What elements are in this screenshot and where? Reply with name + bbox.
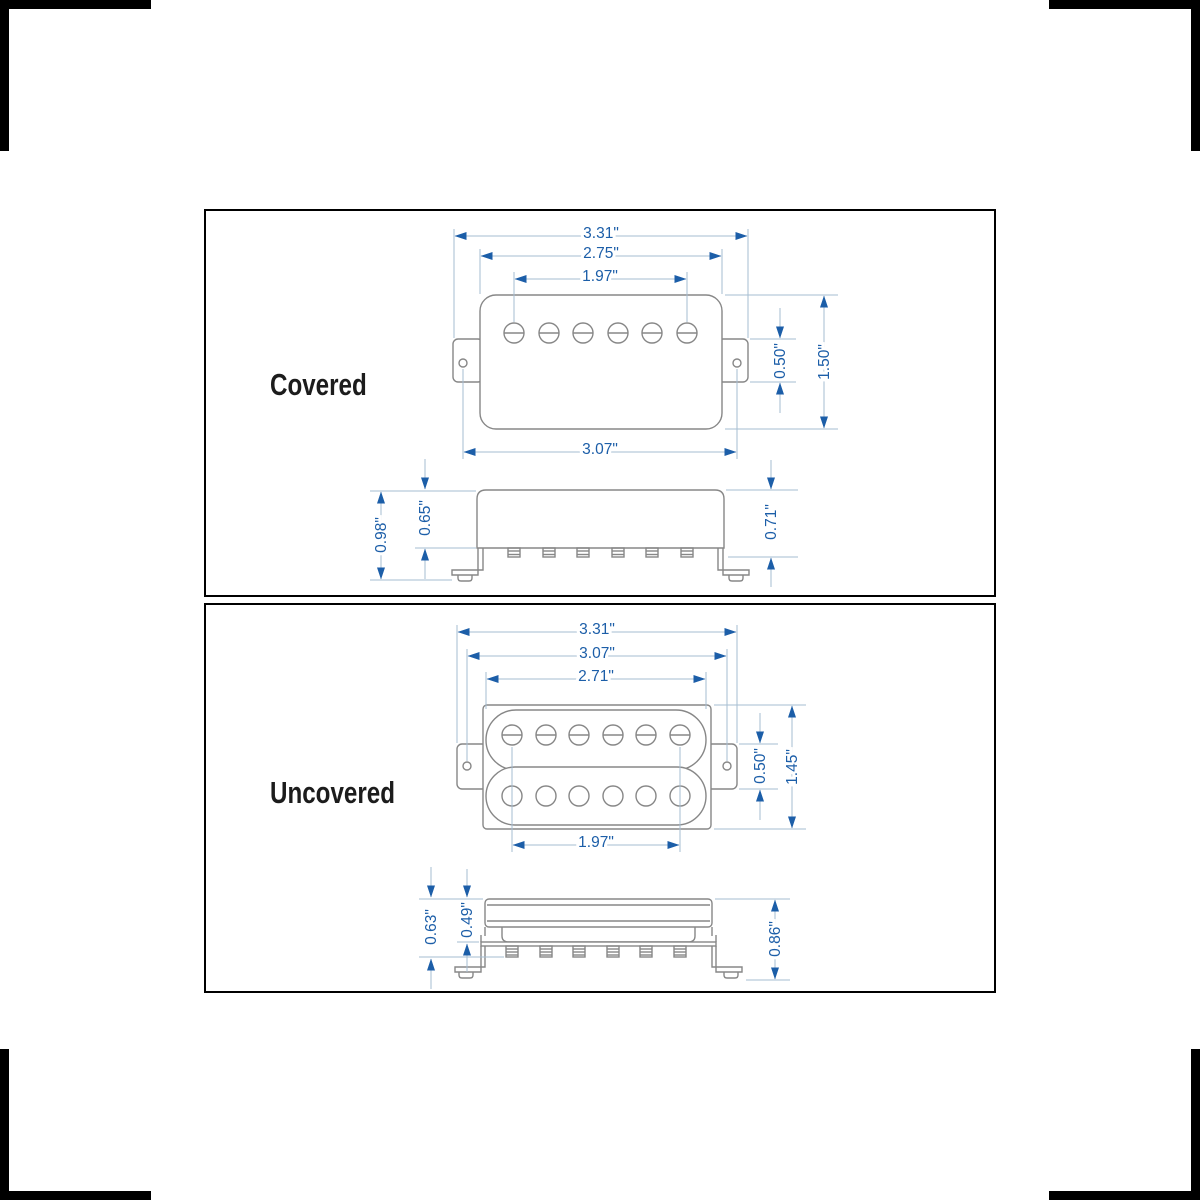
dim-mounting-width-label: 3.07" [582,441,618,458]
covered-top-view [453,295,748,429]
covered-panel: Covered [204,209,996,597]
uncovered-side-view [455,899,742,978]
dim-ear-height-label: 0.50" [772,343,789,379]
frame-corner-bottom-left [0,1049,151,1200]
frame-corner-bottom-right [1049,1049,1200,1200]
cover-side-profile [477,490,724,548]
dim-bobbin-depth-label: 0.49" [459,902,476,938]
pole-screw-tips [508,548,693,557]
uncovered-drawing: 3.31" 3.07" 2.71" 1.97" [206,605,994,991]
covered-side-view [452,490,749,581]
mounting-hole-left [463,762,471,770]
dim-total-depth-label: 0.98" [373,517,390,553]
pickup-cover-body [480,295,722,429]
dim-mounting-width-label: 3.07" [579,645,615,662]
diagram-canvas: Covered [0,0,1200,1200]
uncovered-top-view [457,705,737,829]
lower-bobbin-profile [502,927,695,942]
dim-body-height-label: 1.50" [816,344,833,380]
dim-total-depth-label: 0.63" [423,909,440,945]
frame-corner-top-right [1049,0,1200,151]
uncovered-panel: Uncovered [204,603,996,993]
bobbin-side-profile [485,899,712,927]
pole-screw-threads [506,946,686,957]
mounting-legs [455,946,742,978]
frame-corner-top-left [0,0,151,151]
dim-overall-width-label: 3.31" [579,621,615,638]
mounting-hole-right [733,359,741,367]
mounting-hole-left [459,359,467,367]
mounting-ear-left [453,339,483,382]
dim-base-depth-label: 0.86" [767,921,784,957]
dim-pole-spacing-label: 1.97" [582,268,618,285]
dim-body-height-label: 1.45" [784,749,801,785]
dim-bobbin-width-label: 2.71" [578,668,614,685]
dim-cover-width-label: 2.75" [583,245,619,262]
dim-cover-depth-label: 0.65" [417,500,434,536]
dim-ear-height-label: 0.50" [752,748,769,784]
mounting-hole-right [723,762,731,770]
dim-overall-width-label: 3.31" [583,225,619,242]
dim-pole-spacing-label: 1.97" [578,834,614,851]
dim-base-depth-label: 0.71" [763,504,780,540]
mounting-legs [452,548,749,581]
covered-drawing: 3.31" 2.75" 1.97" 3.07" [206,211,994,595]
